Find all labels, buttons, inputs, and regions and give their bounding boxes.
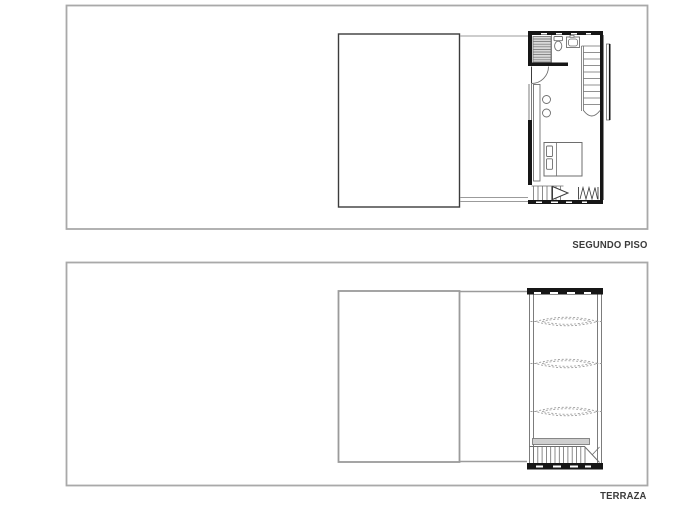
roof-slab: [339, 34, 460, 207]
toilet: [554, 37, 563, 51]
drawing-sheet: SEGUNDO PISO TERRAZA: [0, 0, 700, 509]
floor-plans-canvas: [0, 0, 700, 509]
bed: [544, 143, 582, 177]
upper-stair-run: [533, 35, 552, 63]
terraza-label: TERRAZA: [601, 490, 647, 502]
segundo-piso-label: SEGUNDO PISO: [572, 239, 647, 251]
privacy-screen: [607, 44, 610, 120]
terrace-roof-slab: [339, 291, 460, 462]
terraza-panel: [67, 263, 648, 486]
sink: [567, 35, 580, 47]
desk: [534, 85, 541, 182]
segundo-piso-panel: [67, 6, 648, 230]
bench: [533, 439, 590, 445]
